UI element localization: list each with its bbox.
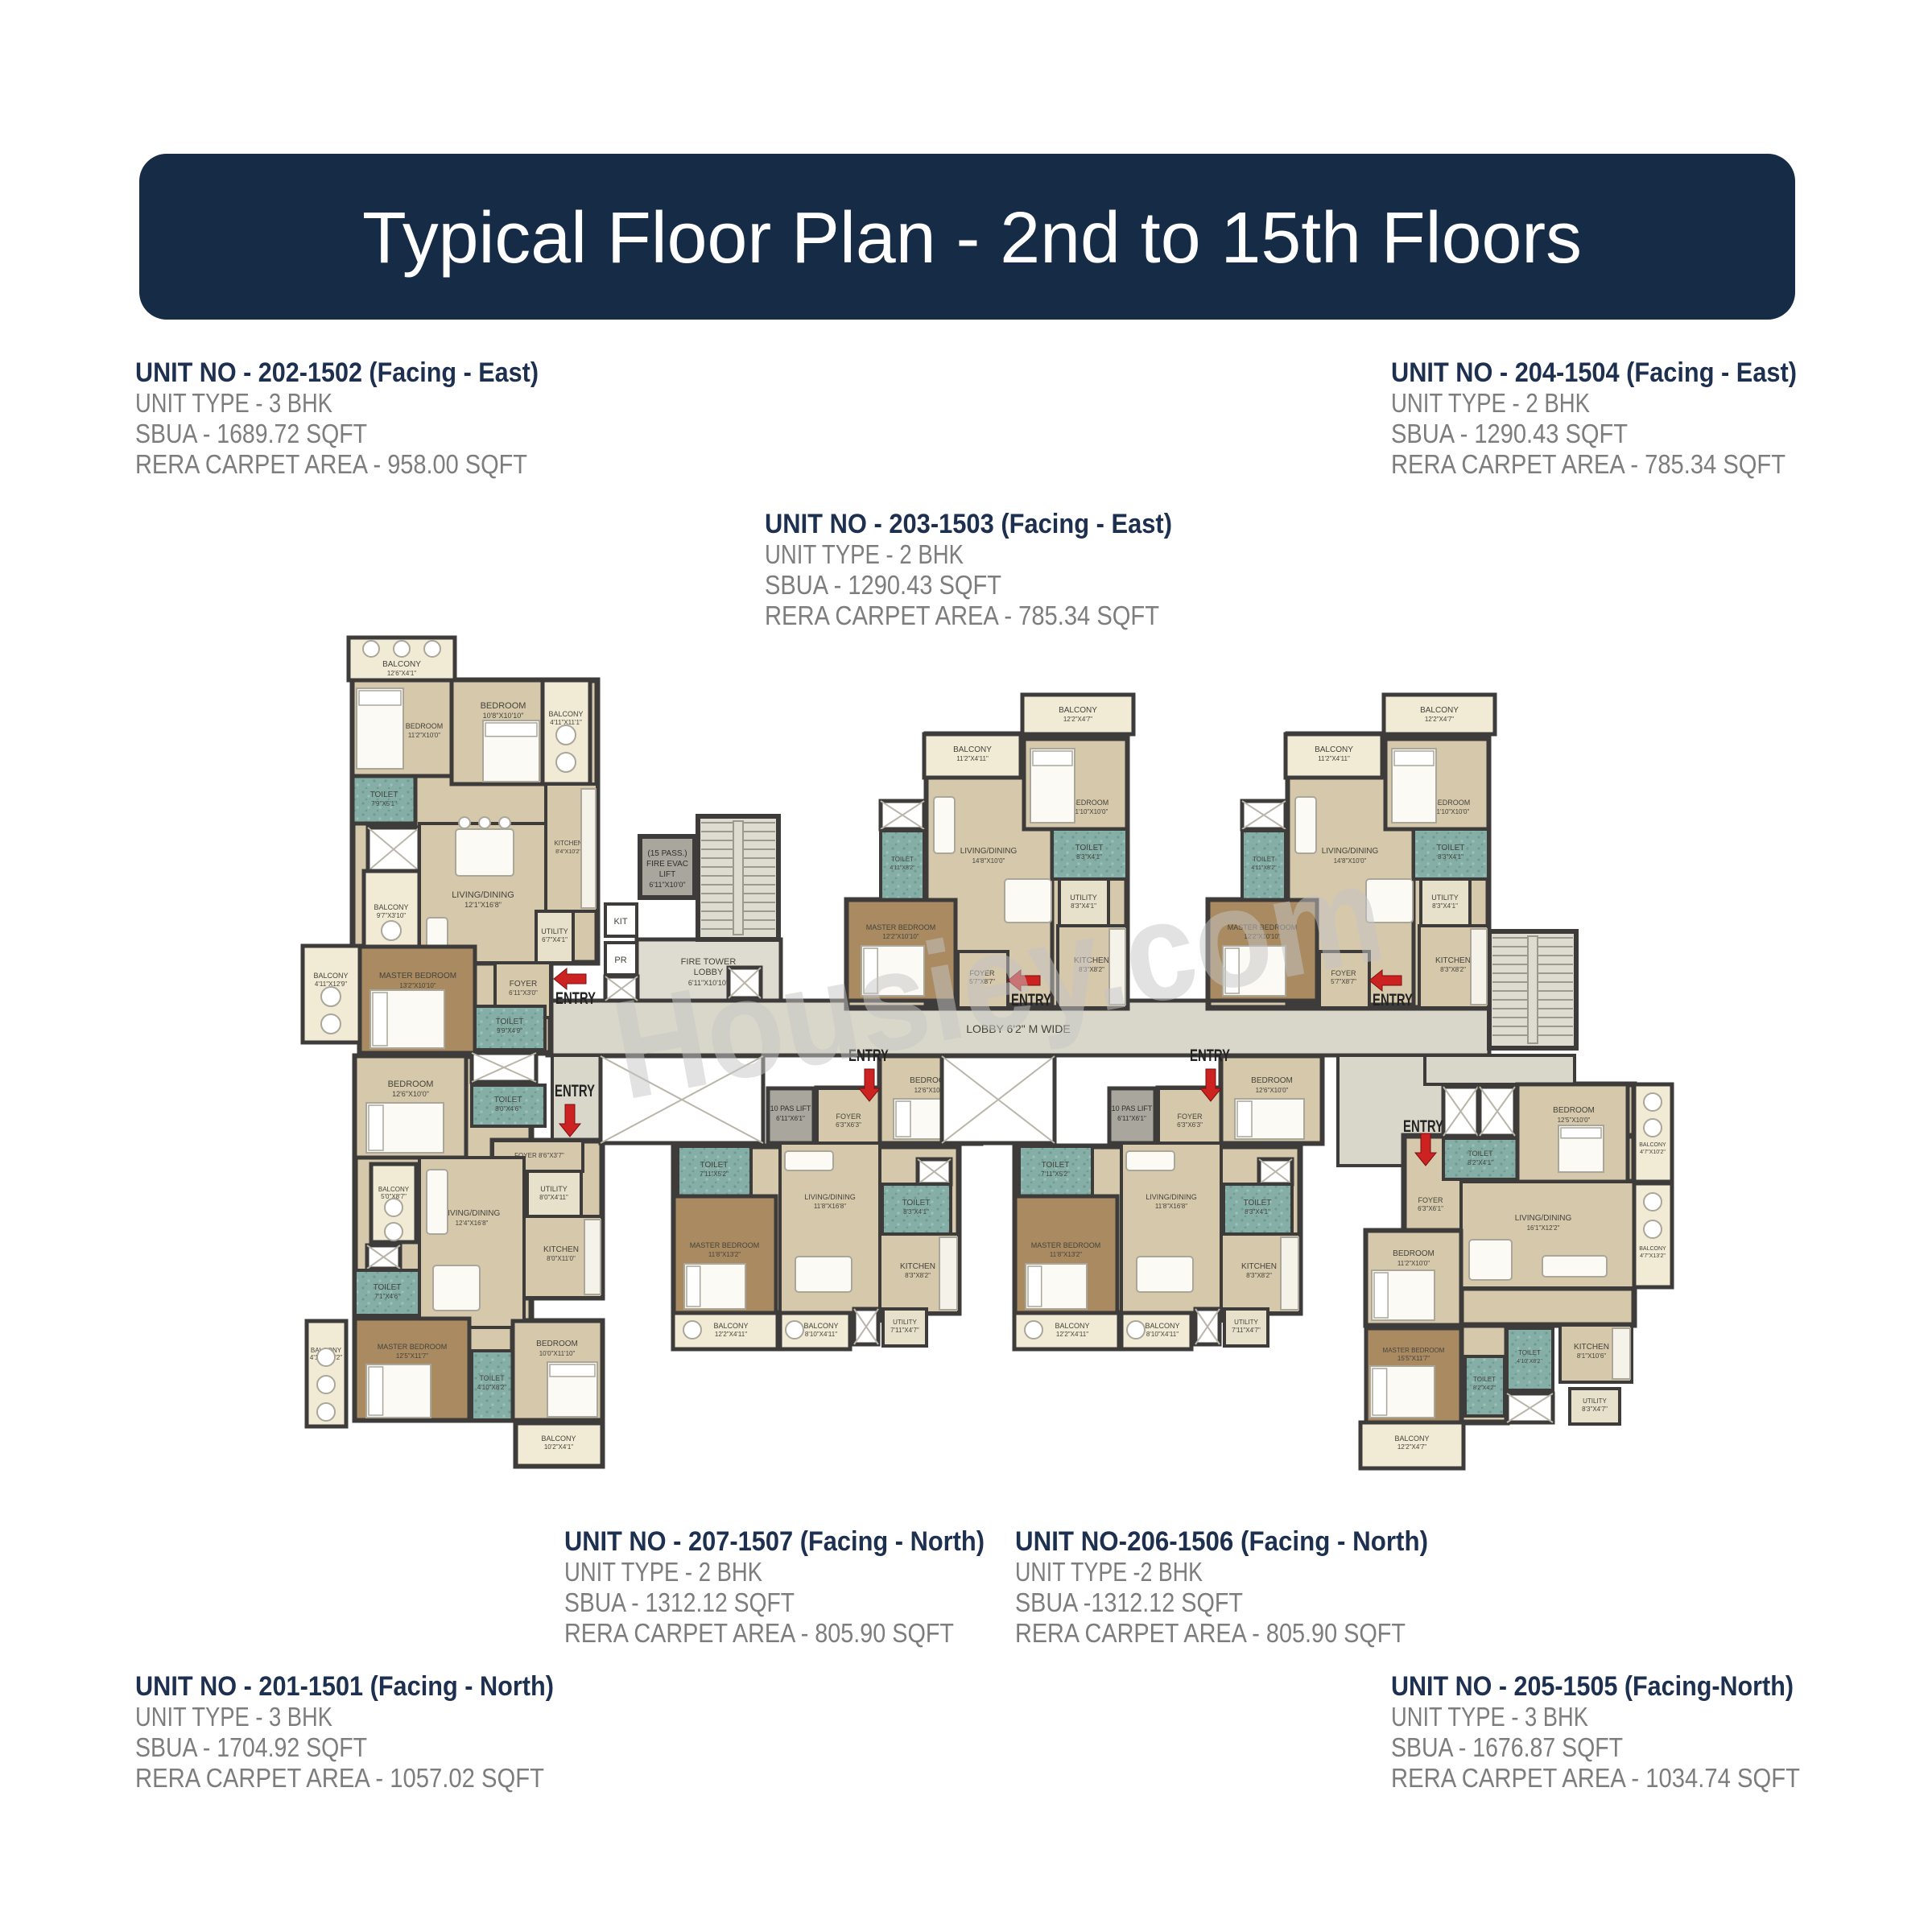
svg-text:TOILET: TOILET [479, 1374, 505, 1382]
svg-text:BEDROOM: BEDROOM [1071, 799, 1109, 807]
svg-text:8'3"X8'2": 8'3"X8'2" [905, 1272, 931, 1279]
svg-text:BALCONY: BALCONY [313, 972, 348, 980]
svg-text:BALCONY: BALCONY [713, 1322, 748, 1330]
svg-text:ENTRY: ENTRY [1190, 1046, 1230, 1065]
svg-text:UNIT TYPE -2 BHK: UNIT TYPE -2 BHK [1015, 1557, 1203, 1587]
svg-text:TOILET: TOILET [1518, 1349, 1541, 1356]
svg-text:10'8"X10'10": 10'8"X10'10" [483, 712, 524, 720]
svg-text:LIVING/DINING: LIVING/DINING [804, 1193, 856, 1201]
svg-text:BEDROOM: BEDROOM [388, 1080, 434, 1089]
svg-text:8'3"X4'1": 8'3"X4'1" [1432, 902, 1458, 910]
svg-text:MASTER BEDROOM: MASTER BEDROOM [378, 1343, 448, 1351]
svg-text:UNIT TYPE - 3 BHK: UNIT TYPE - 3 BHK [1391, 1702, 1588, 1732]
svg-text:LIVING/DINING: LIVING/DINING [1146, 1193, 1197, 1201]
svg-text:6'7"X4'1": 6'7"X4'1" [542, 936, 568, 943]
svg-text:FIRE EVAC: FIRE EVAC [646, 860, 688, 869]
svg-text:RERA CARPET AREA - 785.34 SQFT: RERA CARPET AREA - 785.34 SQFT [765, 601, 1159, 630]
svg-text:UNIT NO - 201-1501 (Facing - N: UNIT NO - 201-1501 (Facing - North) [135, 1671, 554, 1702]
svg-text:6'11"X6'1": 6'11"X6'1" [776, 1115, 805, 1122]
svg-text:8'1"X10'6": 8'1"X10'6" [1577, 1352, 1606, 1360]
svg-text:BALCONY: BALCONY [1145, 1322, 1179, 1330]
svg-text:BALCONY: BALCONY [1059, 706, 1097, 715]
svg-text:11'2"X4'11": 11'2"X4'11" [1318, 755, 1350, 762]
svg-text:FOYER: FOYER [1418, 1196, 1443, 1204]
svg-text:8'3"X8'2": 8'3"X8'2" [1440, 966, 1466, 973]
svg-text:LIVING/DINING: LIVING/DINING [1515, 1214, 1572, 1223]
svg-text:4'11"X8'2": 4'11"X8'2" [890, 865, 915, 871]
svg-text:8'3"X4'7": 8'3"X4'7" [1582, 1406, 1608, 1413]
svg-text:11'2"X4'11": 11'2"X4'11" [956, 755, 989, 762]
svg-text:8'3"X8'2": 8'3"X8'2" [1246, 1272, 1272, 1279]
svg-text:11'8"X13'2": 11'8"X13'2" [1050, 1251, 1082, 1258]
svg-text:4'7"X10'2": 4'7"X10'2" [1640, 1150, 1666, 1155]
svg-text:LIVING/DINING: LIVING/DINING [452, 890, 514, 900]
svg-text:RERA CARPET AREA - 1034.74 SQF: RERA CARPET AREA - 1034.74 SQFT [1391, 1763, 1800, 1793]
svg-text:BALCONY: BALCONY [803, 1322, 838, 1330]
svg-text:11'2"X10'0": 11'2"X10'0" [408, 732, 440, 739]
svg-text:UTILITY: UTILITY [540, 1185, 568, 1193]
svg-text:11'10"X10'0": 11'10"X10'0" [1072, 808, 1108, 815]
svg-text:TOILET: TOILET [370, 791, 398, 799]
svg-text:BALCONY: BALCONY [541, 1435, 576, 1443]
svg-text:KITCHEN: KITCHEN [1241, 1262, 1277, 1271]
svg-text:12'4"X16'8": 12'4"X16'8" [456, 1220, 489, 1227]
svg-text:KITCHEN: KITCHEN [900, 1262, 935, 1271]
svg-text:ENTRY: ENTRY [1403, 1117, 1443, 1136]
svg-text:RERA CARPET AREA - 1057.02 SQF: RERA CARPET AREA - 1057.02 SQFT [135, 1763, 544, 1793]
svg-text:RERA CARPET AREA - 805.90 SQFT: RERA CARPET AREA - 805.90 SQFT [564, 1618, 954, 1648]
svg-text:SBUA - 1290.43 SQFT: SBUA - 1290.43 SQFT [765, 570, 1001, 600]
svg-text:8'3"X4'1": 8'3"X4'1" [903, 1208, 929, 1216]
svg-text:SBUA - 1676.87 SQFT: SBUA - 1676.87 SQFT [1391, 1732, 1623, 1762]
svg-text:12'6"X10'0": 12'6"X10'0" [392, 1090, 429, 1098]
svg-text:7'11"X4'7": 7'11"X4'7" [890, 1327, 919, 1334]
svg-text:12'2"X4'7": 12'2"X4'7" [1425, 716, 1454, 723]
svg-text:UTILITY: UTILITY [1431, 894, 1459, 902]
svg-text:RERA CARPET AREA - 785.34 SQFT: RERA CARPET AREA - 785.34 SQFT [1391, 449, 1785, 479]
svg-text:6'11"X10'0": 6'11"X10'0" [649, 881, 685, 889]
svg-text:UNIT TYPE - 3 BHK: UNIT TYPE - 3 BHK [135, 388, 332, 418]
svg-text:11'8"X16'8": 11'8"X16'8" [1155, 1203, 1187, 1210]
svg-text:12'6"X10'0": 12'6"X10'0" [1256, 1087, 1289, 1094]
svg-text:FOYER: FOYER [836, 1113, 861, 1121]
svg-text:KITCHEN: KITCHEN [543, 1245, 579, 1254]
svg-text:7'11"X5'2": 7'11"X5'2" [1041, 1170, 1070, 1178]
svg-text:KITCHEN: KITCHEN [1435, 956, 1471, 965]
svg-text:BALCONY: BALCONY [1315, 745, 1353, 754]
svg-text:Typical Floor Plan - 2nd to 15: Typical Floor Plan - 2nd to 15th Floors [362, 198, 1582, 279]
svg-text:RERA CARPET AREA - 958.00 SQFT: RERA CARPET AREA - 958.00 SQFT [135, 449, 527, 479]
svg-text:BALCONY: BALCONY [1420, 706, 1459, 715]
svg-text:UNIT NO - 204-1504 (Facing - E: UNIT NO - 204-1504 (Facing - East) [1391, 357, 1797, 388]
svg-text:BALCONY: BALCONY [548, 710, 583, 718]
svg-text:10'2"X4'1": 10'2"X4'1" [544, 1443, 573, 1451]
svg-text:4'7"X13'2": 4'7"X13'2" [1640, 1253, 1666, 1259]
svg-text:BEDROOM: BEDROOM [481, 701, 526, 711]
svg-text:4'10"X8'2": 4'10"X8'2" [1517, 1359, 1542, 1364]
svg-text:6'11"X3'0": 6'11"X3'0" [509, 989, 538, 997]
svg-text:12'1"X16'8": 12'1"X16'8" [464, 901, 502, 909]
svg-text:UNIT TYPE - 2 BHK: UNIT TYPE - 2 BHK [564, 1557, 762, 1587]
svg-text:11'10"X10'0": 11'10"X10'0" [1434, 808, 1470, 815]
svg-text:10 PAS LIFT: 10 PAS LIFT [770, 1104, 811, 1113]
svg-text:10'0"X11'10": 10'0"X11'10" [539, 1350, 576, 1357]
svg-text:SBUA -1312.12 SQFT: SBUA -1312.12 SQFT [1015, 1587, 1243, 1617]
svg-text:UNIT NO - 202-1502 (Facing - E: UNIT NO - 202-1502 (Facing - East) [135, 357, 539, 388]
svg-text:12'2"X4'7": 12'2"X4'7" [1397, 1443, 1426, 1451]
svg-text:15'5"X11'7": 15'5"X11'7" [1397, 1355, 1430, 1362]
svg-text:LIVING/DINING: LIVING/DINING [444, 1209, 501, 1218]
svg-text:11'8"X16'8": 11'8"X16'8" [814, 1203, 846, 1210]
svg-text:BALCONY: BALCONY [953, 745, 992, 754]
svg-text:8'4"X10'2": 8'4"X10'2" [555, 849, 581, 855]
svg-text:BEDROOM: BEDROOM [1433, 799, 1471, 807]
svg-text:UTILITY: UTILITY [541, 927, 568, 935]
svg-text:8'0"X11'0": 8'0"X11'0" [547, 1255, 576, 1262]
svg-text:14'8"X10'0": 14'8"X10'0" [972, 857, 1005, 865]
svg-text:8'0"X4'11": 8'0"X4'11" [539, 1194, 568, 1201]
svg-text:RERA CARPET AREA - 805.90 SQFT: RERA CARPET AREA - 805.90 SQFT [1015, 1618, 1406, 1648]
svg-text:BALCONY: BALCONY [1639, 1246, 1666, 1252]
svg-text:BALCONY: BALCONY [1055, 1322, 1089, 1330]
svg-text:13'2"X10'10": 13'2"X10'10" [399, 982, 436, 989]
svg-text:TOILET: TOILET [700, 1161, 729, 1170]
svg-text:TOILET: TOILET [1244, 1199, 1272, 1207]
svg-text:11'8"X13'2": 11'8"X13'2" [708, 1251, 741, 1258]
svg-text:TOILET: TOILET [1473, 1376, 1496, 1383]
svg-text:12'5"X11'7": 12'5"X11'7" [396, 1352, 428, 1360]
svg-text:12'5"X10'0": 12'5"X10'0" [1558, 1117, 1591, 1124]
svg-text:FOYER: FOYER [1177, 1113, 1203, 1121]
svg-text:16'1"X12'2": 16'1"X12'2" [1527, 1224, 1560, 1232]
svg-text:12'2"X4'7": 12'2"X4'7" [1063, 716, 1092, 723]
svg-text:8'2"X4'2": 8'2"X4'2" [1473, 1385, 1496, 1391]
svg-text:7'11"X4'7": 7'11"X4'7" [1232, 1327, 1261, 1334]
svg-text:6'11"X6'1": 6'11"X6'1" [1117, 1115, 1146, 1122]
svg-text:LIVING/DINING: LIVING/DINING [960, 847, 1018, 856]
svg-text:9'7"X3'10": 9'7"X3'10" [377, 912, 406, 919]
svg-text:UTILITY: UTILITY [1583, 1397, 1607, 1405]
svg-text:SBUA - 1290.43 SQFT: SBUA - 1290.43 SQFT [1391, 419, 1628, 448]
svg-text:UNIT TYPE - 2 BHK: UNIT TYPE - 2 BHK [1391, 388, 1590, 418]
svg-text:(15 PASS.): (15 PASS.) [647, 849, 687, 858]
svg-text:SBUA - 1312.12 SQFT: SBUA - 1312.12 SQFT [564, 1587, 795, 1617]
svg-text:BALCONY: BALCONY [374, 903, 408, 911]
svg-text:11'2"X10'0": 11'2"X10'0" [1397, 1260, 1430, 1267]
svg-text:UTILITY: UTILITY [893, 1319, 917, 1326]
svg-text:9'9"X4'9": 9'9"X4'9" [497, 1027, 522, 1034]
svg-text:UNIT NO - 203-1503 (Facing - E: UNIT NO - 203-1503 (Facing - East) [765, 509, 1172, 539]
svg-text:TOILET: TOILET [902, 1199, 931, 1207]
svg-text:7'1"X4'6": 7'1"X4'6" [374, 1293, 400, 1300]
svg-text:MASTER BEDROOM: MASTER BEDROOM [690, 1241, 760, 1249]
svg-text:UNIT TYPE - 3 BHK: UNIT TYPE - 3 BHK [135, 1702, 332, 1732]
svg-text:UTILITY: UTILITY [1234, 1319, 1258, 1326]
svg-text:TOILET: TOILET [1075, 844, 1104, 852]
svg-text:UNIT NO-206-1506 (Facing - Nor: UNIT NO-206-1506 (Facing - North) [1015, 1526, 1428, 1557]
svg-text:10 PAS LIFT: 10 PAS LIFT [1112, 1104, 1153, 1113]
svg-text:UNIT NO - 205-1505 (Facing-Nor: UNIT NO - 205-1505 (Facing-North) [1391, 1671, 1794, 1702]
svg-text:8'0"X4'6": 8'0"X4'6" [495, 1105, 521, 1113]
svg-text:PR: PR [614, 956, 626, 965]
svg-text:BEDROOM: BEDROOM [1251, 1076, 1293, 1085]
svg-text:KIT: KIT [613, 917, 627, 927]
svg-text:6'3"X6'1": 6'3"X6'1" [1418, 1205, 1443, 1212]
svg-text:MASTER BEDROOM: MASTER BEDROOM [379, 972, 456, 980]
svg-text:ENTRY: ENTRY [555, 989, 596, 1008]
svg-text:SBUA - 1689.72 SQFT: SBUA - 1689.72 SQFT [135, 419, 367, 448]
svg-text:12'2"X4'11": 12'2"X4'11" [1056, 1331, 1088, 1338]
svg-text:BALCONY: BALCONY [1394, 1435, 1429, 1443]
svg-text:BEDROOM: BEDROOM [1553, 1106, 1595, 1115]
svg-text:TOILET: TOILET [1042, 1161, 1070, 1170]
svg-text:TOILET: TOILET [494, 1096, 522, 1104]
svg-text:12'2"X4'11": 12'2"X4'11" [715, 1331, 747, 1338]
svg-text:6'3"X6'3": 6'3"X6'3" [836, 1121, 861, 1129]
svg-text:TOILET: TOILET [374, 1283, 402, 1292]
svg-text:6'3"X6'3": 6'3"X6'3" [1177, 1121, 1203, 1129]
svg-text:7'11"X5'2": 7'11"X5'2" [700, 1170, 729, 1178]
svg-text:BEDROOM: BEDROOM [406, 722, 444, 730]
svg-text:ENTRY: ENTRY [555, 1082, 595, 1100]
svg-text:12'6"X4'1": 12'6"X4'1" [387, 670, 416, 677]
svg-text:KITCHEN: KITCHEN [1574, 1343, 1609, 1352]
svg-text:BEDROOM: BEDROOM [1393, 1249, 1435, 1258]
svg-text:UNIT NO - 207-1507 (Facing - N: UNIT NO - 207-1507 (Facing - North) [564, 1526, 985, 1557]
svg-text:8'10"X4'11": 8'10"X4'11" [1146, 1331, 1179, 1338]
svg-text:TOILET: TOILET [891, 856, 914, 863]
svg-text:8'3"X4'1": 8'3"X4'1" [1438, 853, 1463, 861]
svg-text:BEDROOM: BEDROOM [536, 1340, 578, 1348]
svg-text:FOYER: FOYER [510, 980, 537, 989]
svg-text:SBUA - 1704.92 SQFT: SBUA - 1704.92 SQFT [135, 1732, 367, 1762]
svg-text:8'3"X4'1": 8'3"X4'1" [1076, 853, 1102, 861]
svg-text:UNIT TYPE - 2 BHK: UNIT TYPE - 2 BHK [765, 539, 964, 569]
svg-text:MASTER BEDROOM: MASTER BEDROOM [1383, 1347, 1445, 1354]
svg-text:TOILET: TOILET [1437, 844, 1465, 852]
svg-text:KITCHEN: KITCHEN [554, 840, 582, 847]
svg-text:8'2"X4'1": 8'2"X4'1" [1468, 1159, 1493, 1166]
svg-text:LIFT: LIFT [659, 870, 676, 879]
svg-text:8'3"X4'1": 8'3"X4'1" [1245, 1208, 1270, 1216]
svg-text:TOILET: TOILET [1468, 1150, 1493, 1158]
svg-text:4'10"X8'2": 4'10"X8'2" [477, 1384, 506, 1391]
svg-text:8'10"X4'11": 8'10"X4'11" [805, 1331, 837, 1338]
svg-text:BALCONY: BALCONY [1639, 1142, 1666, 1148]
svg-text:TOILET: TOILET [496, 1018, 524, 1026]
svg-text:7'9"X5'1": 7'9"X5'1" [371, 800, 397, 807]
svg-text:ENTRY: ENTRY [1373, 991, 1413, 1009]
svg-text:BALCONY: BALCONY [378, 1186, 410, 1193]
svg-text:BALCONY: BALCONY [382, 660, 421, 669]
svg-text:MASTER BEDROOM: MASTER BEDROOM [1031, 1241, 1101, 1249]
